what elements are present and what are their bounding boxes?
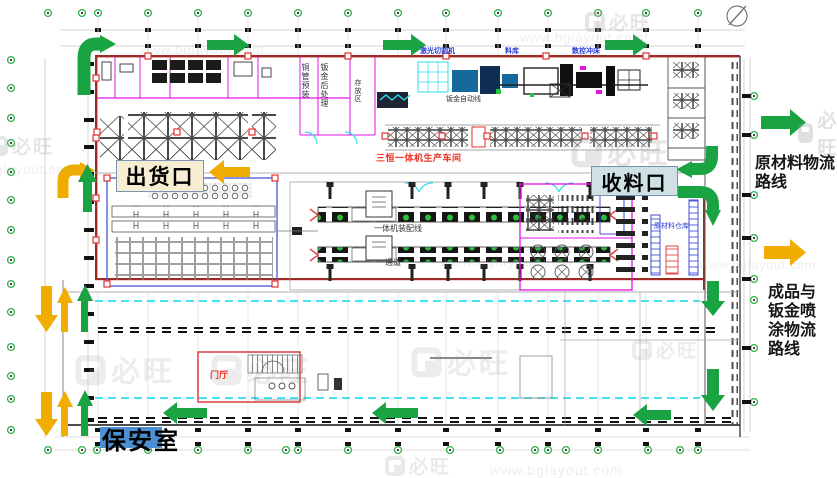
lobby-label: 门厅: [210, 368, 228, 381]
finished-goods-route-label: 成品与 钣金喷 涂物流 路线: [768, 284, 837, 360]
yellow-arrow-up-west-b: [57, 391, 73, 436]
raw-material-warehouse-label: 原材料仓库: [654, 221, 689, 231]
green-arrow-right-top-3: [605, 34, 648, 56]
south-annex: [63, 292, 740, 425]
cnc-punch-label: 数控冲床: [572, 48, 600, 55]
receiving-gate-label: 收料口: [591, 166, 678, 196]
floor-plan-canvas: 出货口 收料口 保安室 原材料物流 路线 成品与 钣金喷 涂物流 路线 三恒一体…: [0, 0, 837, 478]
yellow-arrow-down-west-b: [35, 392, 58, 436]
shipping-gate-label: 出货口: [116, 160, 204, 192]
yellow-arrow-up-west-a: [57, 287, 73, 332]
northeast-rooms: [668, 57, 705, 160]
floor-plan-drawing: [0, 0, 837, 478]
copper-preassembly-label: 铜管预装: [301, 63, 309, 99]
raw-material-route-label: 原材料物流 路线: [755, 155, 837, 193]
spray-coating-zone: [520, 184, 632, 290]
north-compass-icon: [727, 6, 747, 26]
raw-material-warehouse: [616, 186, 698, 278]
green-arrow-right-top-1: [207, 34, 249, 56]
laser-cutting-label: 激光切割机: [420, 48, 455, 55]
workshop-line-label: 三恒一体机生产车间: [376, 151, 462, 164]
material-store-label: 料库: [505, 48, 519, 55]
assembly-line-label: 一体机装配线: [374, 225, 422, 233]
sheetmetal-auto-line-machines: [418, 62, 648, 97]
sheetmetal-auto-line-label: 钣金自动线: [446, 96, 481, 103]
storage-area-label: 存放区: [354, 79, 361, 103]
green-arrow-right-raw-route: [761, 109, 806, 136]
security-room-label: 保安室: [102, 421, 180, 456]
yellow-arrow-left-shipping: [209, 160, 250, 184]
yellow-arrow-right-finished-route: [764, 239, 806, 266]
sheetmetal-post-process-label: 钣金后处理: [320, 63, 328, 108]
yellow-arrow-down-west-a: [35, 286, 58, 332]
aisle-label: 通道: [385, 259, 401, 267]
